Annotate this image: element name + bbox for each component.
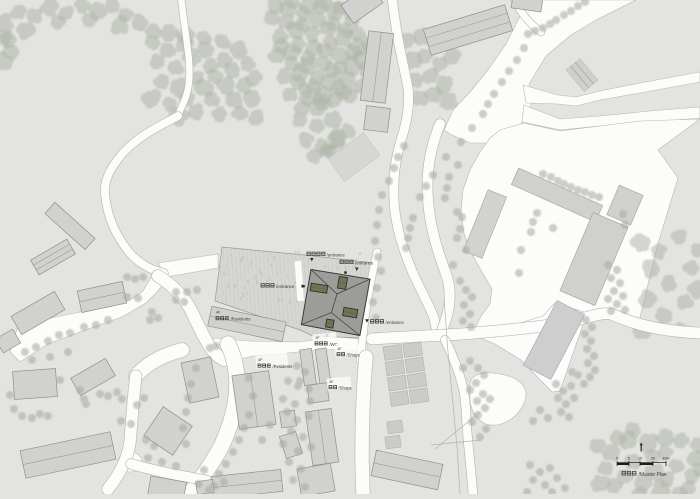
- svg-text:/entrance: /entrance: [355, 261, 374, 266]
- svg-text:4F: 4F: [258, 357, 263, 362]
- svg-text:40m: 40m: [663, 457, 670, 461]
- svg-text:/Shops: /Shops: [339, 386, 352, 391]
- svg-text:4F: 4F: [216, 310, 221, 315]
- svg-text:/Shops: /Shops: [347, 353, 360, 358]
- svg-text:/entrance: /entrance: [327, 253, 346, 258]
- svg-text:5: 5: [628, 457, 630, 461]
- svg-text:10: 10: [638, 457, 642, 461]
- svg-text:1F: 1F: [337, 346, 342, 351]
- svg-text:/entrance: /entrance: [276, 284, 295, 289]
- svg-text:/entrance: /entrance: [386, 320, 405, 325]
- svg-text:0: 0: [616, 457, 618, 461]
- svg-text:1F: 1F: [329, 379, 334, 384]
- svg-text:/Residents: /Residents: [231, 317, 251, 322]
- svg-text:/Residents: /Residents: [273, 364, 293, 369]
- svg-text:1F: 1F: [315, 335, 320, 340]
- svg-text:20: 20: [651, 457, 655, 461]
- svg-text:/Master Plan: /Master Plan: [639, 472, 667, 478]
